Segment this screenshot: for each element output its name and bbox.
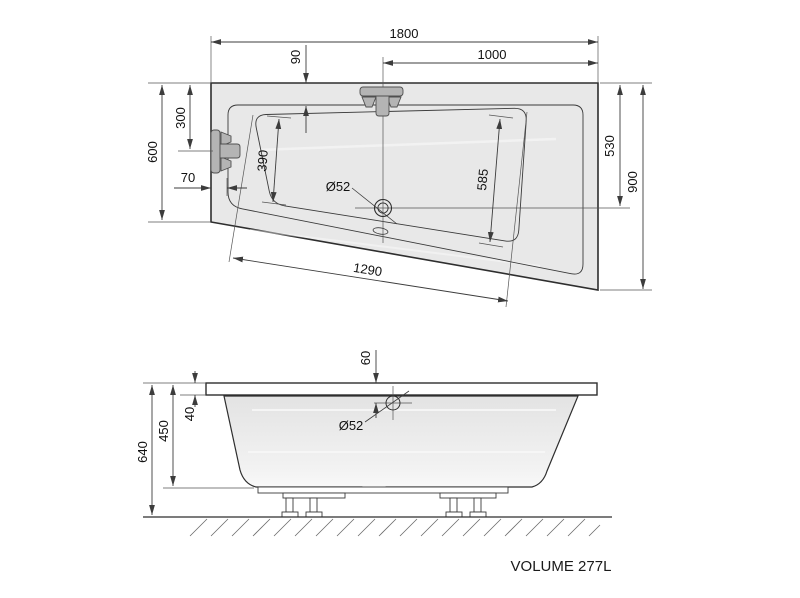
dim-center-to-right: 1000 (478, 47, 507, 62)
bathtub-technical-drawing: 1800 1000 90 600 300 70 390 585 1290 530… (0, 0, 800, 598)
leg (474, 498, 481, 512)
leg (450, 498, 457, 512)
dim-drain-axis-to-top: 530 (602, 135, 617, 157)
dim-bowl-width-right: 585 (474, 168, 491, 191)
volume-label: VOLUME 277L (511, 558, 612, 575)
dim-left-width: 600 (145, 141, 160, 163)
rim-profile (206, 383, 597, 395)
leg (310, 498, 317, 512)
dim-rim-offset-left: 70 (181, 170, 195, 185)
dim-total-height: 640 (135, 441, 150, 463)
dim-bowl-width-left: 390 (254, 149, 270, 172)
support-frame (258, 487, 508, 517)
faucet-bar (211, 130, 220, 173)
dim-overall-length: 1800 (390, 26, 419, 41)
faucet-stem (376, 96, 389, 116)
dim-tub-height: 450 (156, 420, 171, 442)
top-view: 1800 1000 90 600 300 70 390 585 1290 530… (145, 26, 652, 307)
leg-foot (446, 512, 462, 517)
technical-drawing-page: 1800 1000 90 600 300 70 390 585 1290 530… (0, 0, 800, 598)
dim-faucet-offset: 300 (173, 107, 188, 129)
side-view: 60 40 450 640 Ø52 (135, 350, 612, 536)
dim-right-width: 900 (625, 171, 640, 193)
faucet-stem (220, 144, 240, 158)
dim-bowl-slant-length: 1290 (352, 260, 383, 279)
leg-plate-right (440, 493, 496, 498)
faucet-bar (360, 87, 403, 96)
dim-rim-thickness: 40 (182, 407, 197, 421)
dim-rim-offset-top: 90 (288, 50, 303, 64)
dim-drain-offset: 60 (358, 351, 373, 365)
leg-foot (282, 512, 298, 517)
leg (286, 498, 293, 512)
leg-plate-left (283, 493, 345, 498)
leg-foot (470, 512, 486, 517)
label-drain-diameter-side: Ø52 (339, 418, 364, 433)
support-pallet (258, 487, 508, 493)
leg-foot (306, 512, 322, 517)
label-drain-diameter-top: Ø52 (326, 179, 351, 194)
ground-hatching (190, 519, 600, 536)
